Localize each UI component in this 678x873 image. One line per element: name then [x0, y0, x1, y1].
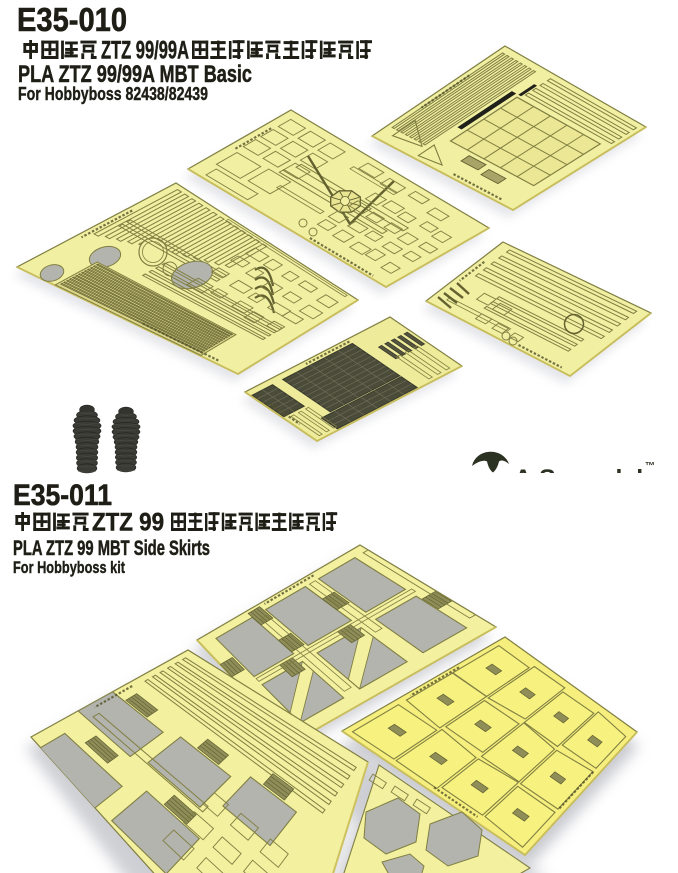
svg-text:For Hobbyboss 82438/82439: For Hobbyboss 82438/82439 [18, 83, 208, 104]
svg-text:For Hobbyboss kit: For Hobbyboss kit [13, 558, 125, 577]
svg-text:ZTZ 99: ZTZ 99 [92, 509, 164, 537]
svg-text:™: ™ [645, 461, 655, 472]
svg-text:PLA ZTZ 99 MBT Side Skirts: PLA ZTZ 99 MBT Side Skirts [13, 537, 210, 560]
svg-text:E35-011: E35-011 [13, 479, 112, 512]
svg-text:E35-010: E35-010 [17, 1, 127, 38]
